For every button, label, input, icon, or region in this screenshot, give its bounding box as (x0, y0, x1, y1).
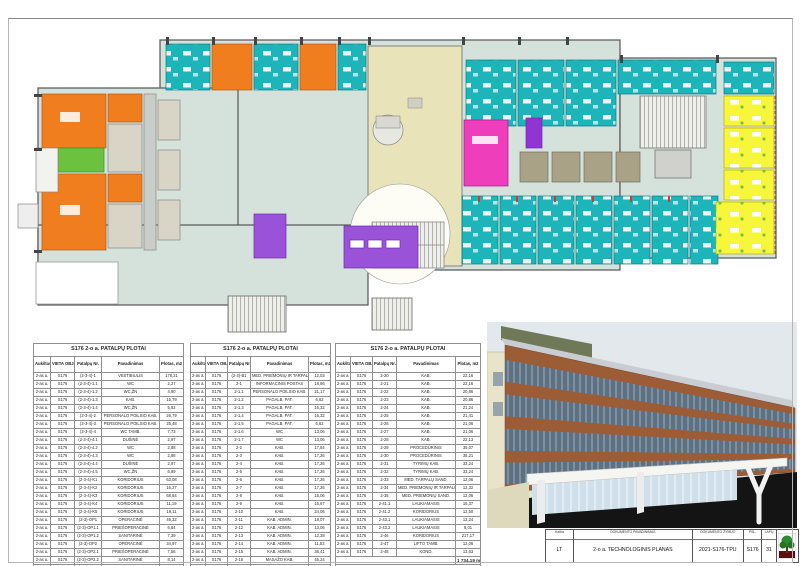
table-row: 2-as a.S176(2-3)-OP1.1PRIEŠOPERACINĖ6,84 (34, 525, 184, 533)
table-title-row: S176 2-o a. PATALPŲ PLOTAI (34, 344, 184, 357)
table-row: 2-as a.S1762-14KAB. ADMIN.11,53 (191, 541, 331, 549)
table-row: 2-as a.S1762-1.2PAGALB. PAT.6,62 (191, 397, 331, 405)
table-row: 2-as a.S1762-41.2KORIDORIUS12,50 (336, 509, 481, 517)
table-row: 2-as a.S1762-27KAB.21,06 (336, 429, 481, 437)
table-row: 2-as a.S1762-12KAB. ADMIN.13,06 (191, 525, 331, 533)
table-row: 2-as a.S176(2-3-4)-4.4DUŠINĖ2,97 (34, 461, 184, 469)
table-row: 2-as a.S176(2-3-4)-1VESTIBIULIS178,21 (34, 373, 184, 381)
table-row: 2-as a.S1762-43.2LAUKIAMASIS8,01 (336, 525, 481, 533)
table-row: 2-as a.S1762-20KAB.22,16 (336, 373, 481, 381)
table-row: 2-as a.S1762-47LIFTO TAMB.12,06 (336, 541, 481, 549)
page-value: S176 (744, 540, 761, 562)
table-row: 2-as a.S176(2-3)-OP2OPERACINĖ34,97 (34, 541, 184, 549)
page-label: PSL. (744, 530, 761, 540)
table-row: 2-as a.S176(2-3-4)-1.3KAB.15,79 (34, 397, 184, 405)
table-row: 2-as a.S176(2-3-4)-4.3WC2,88 (34, 453, 184, 461)
table-row: 2-as a.S1762-1.6WC13,06 (191, 429, 331, 437)
table-row: 2-as a.S176(2-3-4)-K1KORIDORIUS63,08 (34, 477, 184, 485)
table-row: 2-as a.S1762-28KAB.22,13 (336, 437, 481, 445)
doc-name-label: DOKUMENTO PAVADINIMAS (574, 530, 692, 540)
table-row: 2-as a.S1762-1INFORMACINIS POSTAS18,86 (191, 381, 331, 389)
table-row: 2-as a.S1762-5KAB.17,26 (191, 469, 331, 477)
table-row: 2-as a.S1762-34MED. PRIEMONIŲ IR TARPALŲ… (336, 485, 481, 493)
area-table-grid: S176 2-o a. PATALPŲ PLOTAIAukštasVIETA O… (190, 343, 331, 566)
table-row: 2-as a.S176(2-3-4)-1.4WC,ŽN5,82 (34, 405, 184, 413)
area-table-1: S176 2-o a. PATALPŲ PLOTAIAukštasVIETA O… (33, 343, 183, 566)
table-row: 2-as a.S1762-13KAB. ADMIN.12,28 (191, 533, 331, 541)
table-row: 2-as a.S1762-1.5PAGALB. PAT.6,62 (191, 421, 331, 429)
table-row: 2-as a.S1762-8KAB.15,06 (191, 493, 331, 501)
table-row: 2-as a.S176(2-3)-OP1.2SANITARINĖ7,39 (34, 533, 184, 541)
sheets-value: 31 (762, 540, 776, 562)
area-table-grid: S176 2-o a. PATALPŲ PLOTAIAukštasVIETA O… (33, 343, 184, 566)
title-block-language: Kalba LT (546, 530, 574, 562)
right-ward-bottom (462, 196, 718, 264)
table-row: 2-as a.S1762-21KAB.22,16 (336, 381, 481, 389)
table-row: 2-as a.S176(2-3-4)-1.1WC2,27 (34, 381, 184, 389)
table-row: 2-as a.S176(2-3-4)-4.2WC2,88 (34, 445, 184, 453)
table-row: 2-as a.S176(2-3-4)-4WC TAMB.7,73 (34, 429, 184, 437)
title-block-doc-name: DOKUMENTO PAVADINIMAS 2-o a. TECHNOLOGIN… (574, 530, 693, 562)
table-row: 2-as a.S176(2-3-4)-3PERSONALO POILSIO KA… (34, 421, 184, 429)
table-row: 2-as a.S1762-25KAB.21,41 (336, 413, 481, 421)
table-title-row: S176 2-o a. PATALPŲ PLOTAI (191, 344, 331, 357)
top-ward-band (166, 44, 366, 90)
doc-code-label: DOKUMENTO ŽYMUO (693, 530, 743, 540)
foreground-terrace (487, 482, 529, 528)
area-table-2: S176 2-o a. PATALPŲ PLOTAIAukštasVIETA O… (190, 343, 330, 566)
table-row: 2-as a.S1762-35MED. PRIEMONIŲ SAND.12,06 (336, 493, 481, 501)
table-row: 2-as a.S1762-9KAB.15,67 (191, 501, 331, 509)
table-row: 2-as a.S176(2-3-4)-4.1DUŠINĖ2,97 (34, 437, 184, 445)
yellow-offices (716, 96, 775, 254)
table-row: 2-as a.S176(2-3-4)-K2KORIDORIUS16,27 (34, 485, 184, 493)
doc-name-value: 2-o a. TECHNOLOGINIS PLANAS (574, 540, 692, 562)
operating-wing (18, 94, 180, 250)
table-row: 2-as a.S1762-29PROCEDŪRINIS35,07 (336, 445, 481, 453)
table-row: 2-as a.S1762-48KOND.13,63 (336, 549, 481, 557)
doc-code-value: 2021-S176-TPU (693, 540, 743, 562)
table-row: 2-as a.S1762-7KAB.17,26 (191, 485, 331, 493)
table-row: 2-as a.S1762-10KAB.24,06 (191, 509, 331, 517)
title-block-doc-code: DOKUMENTO ŽYMUO 2021-S176-TPU (693, 530, 744, 562)
table-title-row: S176 2-o a. PATALPŲ PLOTAI (336, 344, 481, 357)
table-row: 2-as a.S1762-1.7WC13,06 (191, 437, 331, 445)
area-table-grid: S176 2-o a. PATALPŲ PLOTAIAukštasVIETA O… (335, 343, 481, 566)
table-row: 2-as a.S1762-15KAB. ADMIN.36,41 (191, 549, 331, 557)
table-row: 2-as a.S1762-4KAB.17,26 (191, 461, 331, 469)
total-row: 1 734,19 m² (336, 557, 481, 565)
table-row: 2-as a.S1762-1.1PERSONALO POILSIO KAB.21… (191, 389, 331, 397)
table-row: 2-as a.S1762-26KAB.21,06 (336, 421, 481, 429)
table-row: 2-as a.S1762-6KAB.17,26 (191, 477, 331, 485)
table-row: 2-as a.S176(2-3-4)-1.2WC,ŽN4,90 (34, 389, 184, 397)
table-row: 2-as a.S176(2-3-4)-4.5WC,ŽN6,89 (34, 469, 184, 477)
table-header-row: AukštasVIETA OBJEKTEPatalpų Nr.Pavadinim… (191, 357, 331, 373)
table-row: 2-as a.S1762-31TYRIMŲ KAB.33,24 (336, 461, 481, 469)
table-row: 2-as a.S1762-2KAB.17,84 (191, 445, 331, 453)
building-3d-render (487, 322, 797, 528)
floor-plan-drawing (0, 0, 800, 340)
table-row: 2-as a.S1762-24KAB.21,24 (336, 405, 481, 413)
table-row: 2-as a.S176(2-3)-B1MED. PRIEMONIŲ IR TAR… (191, 373, 331, 381)
table-row: 2-as a.S1762-32TYRIMŲ KAB.33,24 (336, 469, 481, 477)
company-logo-cell (777, 530, 798, 562)
table-row: 2-as a.S1762-43.1LAUKIAMASIS13,24 (336, 517, 481, 525)
table-row: 2-as a.S1762-1.4PAGALB. PAT.16,32 (191, 413, 331, 421)
table-row: 2-as a.S1762-3KAB.17,26 (191, 453, 331, 461)
sheets-label: LAPŲ (762, 530, 776, 540)
table-row: 2-as a.S1762-1.3PAGALB. PAT.16,32 (191, 405, 331, 413)
table-row: 2-as a.S176(2-3-4)-K4KORIDORIUS11,19 (34, 501, 184, 509)
title-block: Kalba LT DOKUMENTO PAVADINIMAS 2-o a. TE… (545, 529, 799, 563)
table-header-row: AukštasVIETA OBJEKTEPatalpų Nr.Pavadinim… (336, 357, 481, 373)
table-row: 2-as a.S1762-41.1LAUKIAMASIS15,37 (336, 501, 481, 509)
table-row: 2-as a.S176(2-3-4)-2PERSONALO POILSIO KA… (34, 413, 184, 421)
language-value: LT (546, 540, 573, 562)
table-row: 2-as a.S176(2-3)-OP1OPERACINĖ46,32 (34, 517, 184, 525)
table-row: 2-as a.S1762-22KAB.20,86 (336, 389, 481, 397)
table-row: 2-as a.S176(2-3)-OP2.2SANITARINĖ8,14 (34, 557, 184, 565)
language-label: Kalba (546, 530, 573, 540)
table-row: 2-as a.S1762-46KORIDORIUS217,17 (336, 533, 481, 541)
table-row: 2-as a.S176(2-3-4)-K3KORIDORIUS68,84 (34, 493, 184, 501)
table-header-row: AukštasVIETA OBJEKTEPatalpų Nr.Pavadinim… (34, 357, 184, 373)
title-block-sheets: LAPŲ 31 (762, 530, 777, 562)
area-table-3: S176 2-o a. PATALPŲ PLOTAIAukštasVIETA O… (335, 343, 480, 566)
table-row: 2-as a.S1762-30PROCEDŪRINIS35,21 (336, 453, 481, 461)
table-row: 2-as a.S1762-33MED. TARPALŲ SAND.12,06 (336, 477, 481, 485)
table-row: 2-as a.S1762-23KAB.20,86 (336, 397, 481, 405)
table-row: 2-as a.S176(2-3)-OP2.1PRIEŠOPERACINĖ7,56 (34, 549, 184, 557)
table-row: 2-as a.S1762-16MASAŽO KAB.45,24 (191, 557, 331, 565)
tree-logo-icon (778, 533, 796, 559)
table-row: 2-as a.S176(2-3-4)-K5KORIDORIUS19,11 (34, 509, 184, 517)
table-row: 2-as a.S1762-11KAB. ADMIN.18,07 (191, 517, 331, 525)
drawing-sheet: S176 2-o a. PATALPŲ PLOTAIAukštasVIETA O… (0, 0, 800, 566)
title-block-page: PSL. S176 (744, 530, 762, 562)
